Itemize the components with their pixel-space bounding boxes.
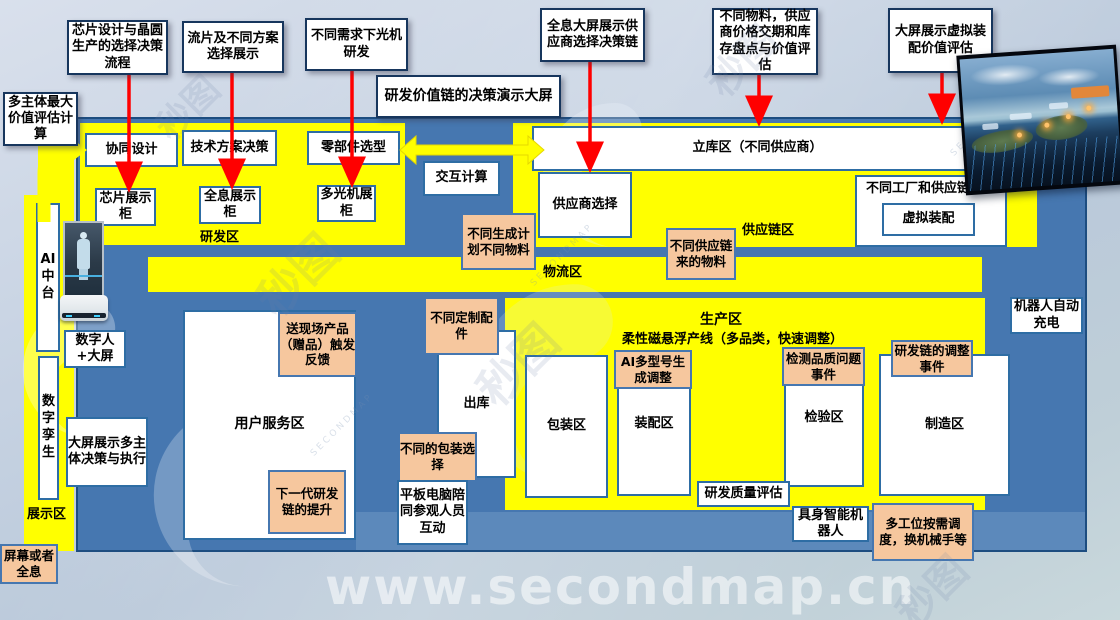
box-holo-showcase: 全息展示柜 — [199, 186, 261, 224]
box-interactive-computing: 交互计算 — [423, 161, 500, 196]
figure-body — [77, 239, 90, 269]
label-zone-display: 展示区 — [27, 503, 66, 522]
callout-materials: 不同物料，供应商价格交期和库存盘点与价值评估 — [712, 8, 818, 75]
callout-optical-rnd: 不同需求下光机研发 — [305, 18, 408, 71]
watermark-url: www.secondmap.cn — [325, 558, 916, 616]
label-zone-production: 生产区 — [700, 309, 742, 329]
glow-marker — [1065, 114, 1070, 119]
note-multi-station-dispatch: 多工位按需调度，换机械手等 — [872, 503, 974, 561]
callout-multi-agent-value: 多主体最大价值评估计算 — [3, 92, 78, 146]
box-component-selection: 零部件选型 — [307, 131, 400, 165]
box-collaborative-design: 协同设计 — [85, 133, 178, 167]
glow-marker — [1086, 106, 1091, 111]
kiosk-screen — [63, 221, 104, 297]
label-zone-logistics: 物流区 — [543, 261, 582, 280]
note-naked-screen-holo: 屏幕或者全息 — [0, 544, 58, 584]
large-display-photo — [956, 45, 1120, 196]
cloud — [969, 62, 1041, 88]
note-quality-detect-event: 检测品质问题事件 — [782, 347, 865, 386]
box-digital-twin: 数字孪生 — [38, 356, 59, 500]
note-packaging-choice: 不同的包装选择 — [398, 432, 477, 482]
grid-light-lines — [966, 136, 1120, 192]
box-tablet-tour: 平板电脑陪同参观人员互动 — [397, 480, 468, 545]
digital-human-figure — [77, 232, 90, 280]
banner-rnd-value-chain: 研发价值链的决策演示大屏 — [376, 75, 561, 118]
slide-canvas: 秒图 秒图 秒图 秒图 秒图 SECONDMAP SECONDMAP SECON… — [0, 0, 1120, 620]
map-label — [983, 123, 999, 130]
glow-marker — [1044, 122, 1049, 127]
callout-holo-screen: 全息大屏展示供应商选择决策链 — [540, 8, 645, 62]
map-label — [1010, 113, 1032, 120]
box-supplier-selection: 供应商选择 — [538, 172, 632, 238]
box-rnd-quality-eval: 研发质量评估 — [697, 481, 790, 507]
kiosk-led — [66, 315, 72, 317]
callout-tapeout: 流片及不同方案选择展示 — [182, 21, 284, 73]
display-screen — [960, 49, 1120, 191]
box-tech-solution-decision: 技术方案决策 — [182, 130, 277, 166]
label-zone-rnd: 研发区 — [200, 226, 239, 245]
note-next-gen-rnd-chain: 下一代研发链的提升 — [268, 470, 346, 534]
box-warehouse-suppliers: 立库区（不同供应商） — [532, 126, 983, 171]
note-custom-parts: 不同定制配件 — [424, 297, 499, 355]
box-optical-showcase: 多光机展柜 — [317, 185, 376, 222]
kiosk-led — [94, 315, 100, 317]
label-maglev-line: 柔性磁悬浮产线（多品类，快速调整） — [622, 328, 843, 347]
label-zone-supply-chain: 供应链区 — [742, 219, 794, 238]
box-virtual-assembly: 虚拟装配 — [882, 203, 975, 236]
note-ai-model-adjust: AI多型号生成调整 — [614, 350, 692, 389]
box-ai-platform: AI中台 — [36, 203, 60, 352]
figure-head — [80, 232, 87, 239]
note-gift-feedback: 送现场产品（赠品）触发反馈 — [278, 312, 357, 377]
digital-human-kiosk-photo — [60, 221, 108, 333]
callout-chip-design: 芯片设计与晶圆生产的选择决策流程 — [67, 20, 168, 75]
note-supply-chain-materials: 不同供应链来的物料 — [666, 228, 736, 280]
box-robot-auto-charge: 机器人自动充电 — [1010, 297, 1083, 334]
orange-button — [1071, 85, 1110, 99]
box-packing-zone: 包装区 — [525, 355, 608, 498]
box-big-screen-decision: 大屏展示多主体决策与执行 — [66, 417, 148, 487]
note-generated-plan-materials: 不同生成计划不同物料 — [461, 213, 536, 270]
cloud — [1038, 66, 1101, 89]
box-embodied-robot: 具身智能机器人 — [792, 506, 869, 542]
box-digital-human-screen: 数字人+大屏 — [64, 330, 126, 368]
map-label — [1049, 102, 1068, 109]
note-rnd-chain-adjust-event: 研发链的调整事件 — [891, 340, 973, 377]
screen-highlight-line — [65, 275, 102, 277]
